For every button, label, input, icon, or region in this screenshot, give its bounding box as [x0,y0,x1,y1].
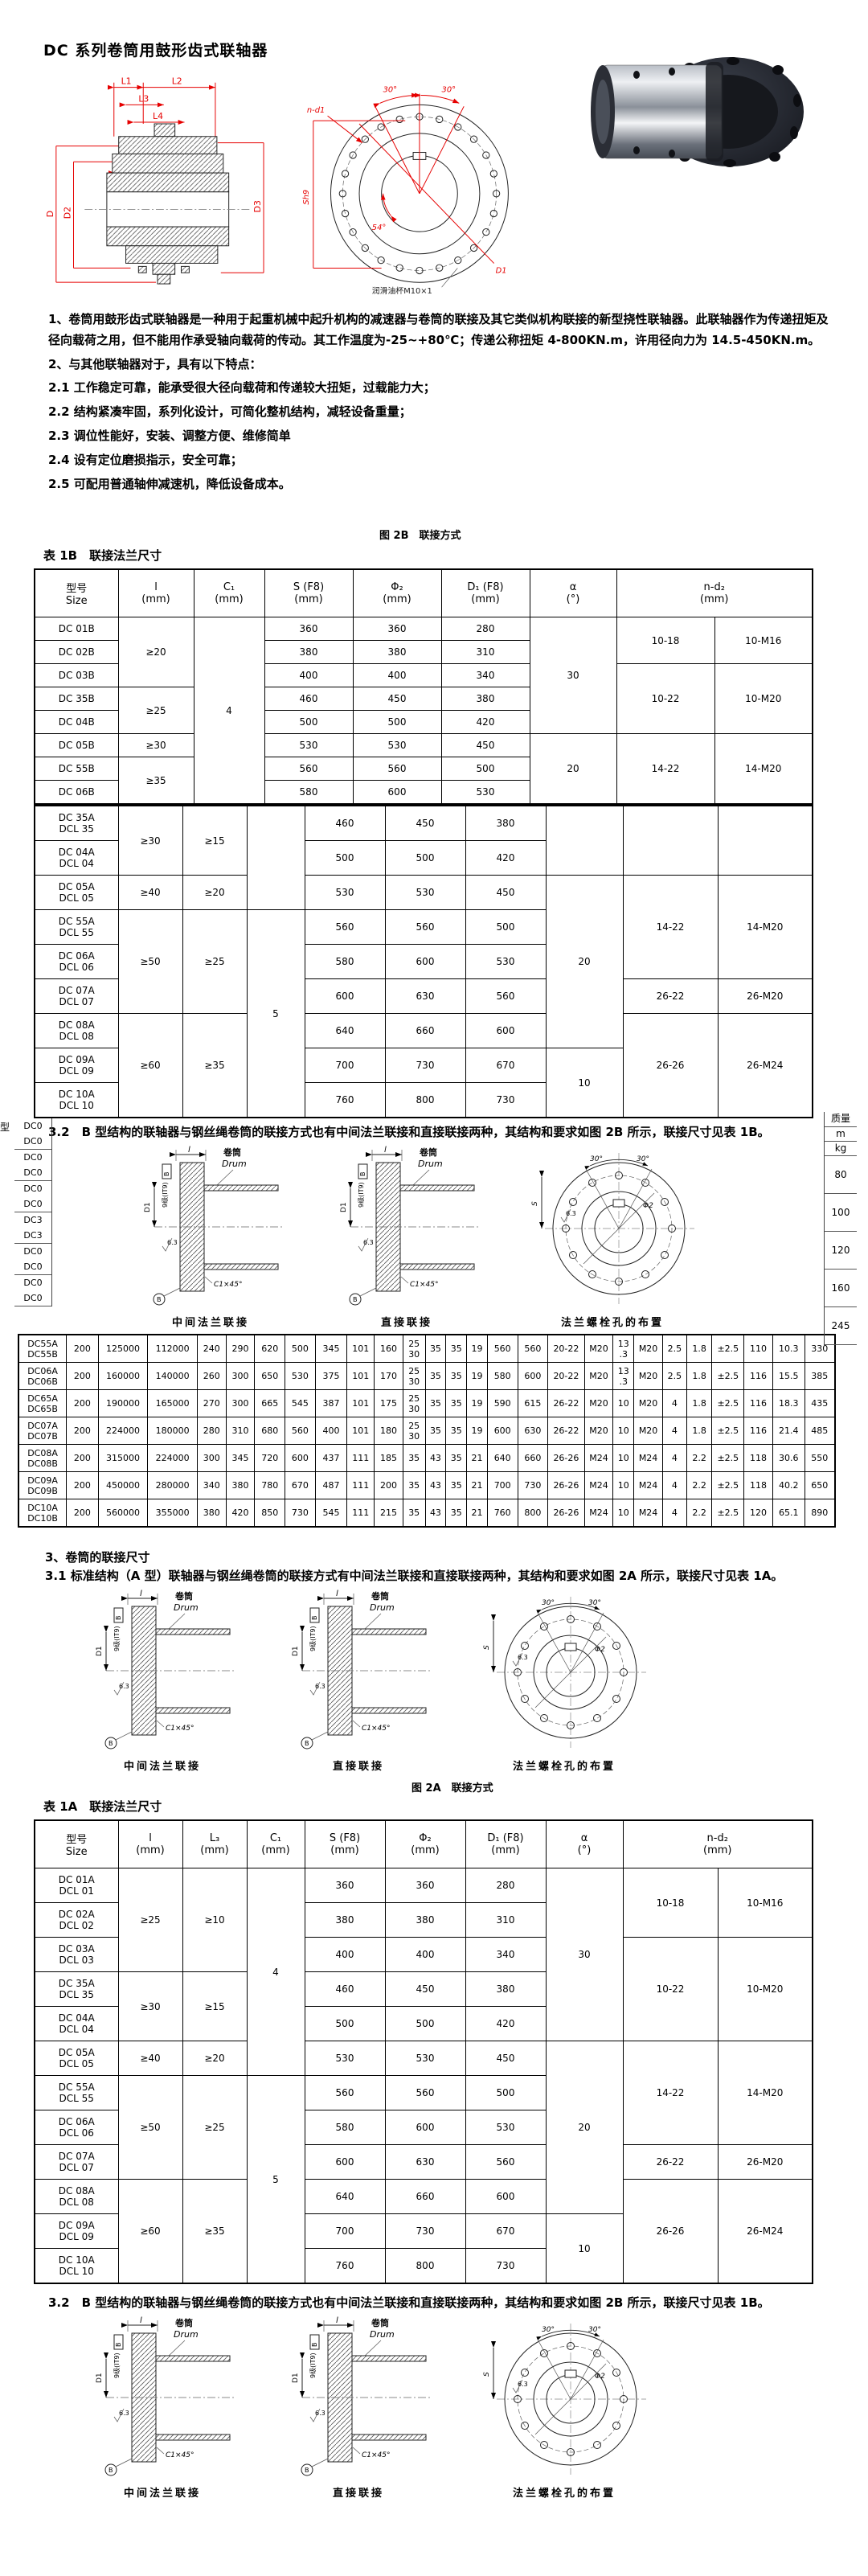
table-cell: 4 [662,1499,686,1528]
svg-text:D1: D1 [292,1647,300,1657]
table-cell: 25 30 [403,1390,425,1417]
table-cell: 35 [425,1417,446,1445]
table-cell: 10 [546,2214,623,2284]
table-cell: M24 [634,1472,663,1499]
table-cell: 10-M16 [714,617,813,664]
svg-text:6.3: 6.3 [315,1683,325,1690]
table-cell: 19 [467,1335,488,1363]
table-cell: 600 [487,1417,518,1445]
svg-text:30°: 30° [637,1155,649,1163]
svg-text:C1×45°: C1×45° [166,1725,194,1733]
table-cell: 18.3 [772,1390,805,1417]
table-cell: DC 55A DCL 55 [35,910,118,945]
table-cell: ±2.5 [712,1499,744,1528]
table-cell: 380 [465,806,546,841]
table-cell: 26-26 [548,1472,584,1499]
table-cell: 650 [255,1363,285,1390]
table-cell: 160 [375,1335,403,1363]
table-cell: DC 05A DCL 05 [35,2041,118,2076]
table-cell: 21.4 [772,1417,805,1445]
table-row: DC 05A DCL 05≥40≥205305304502014-2214-M2… [35,876,813,910]
direct-figure: l 卷筒 Drum D1 9级(IT9) B 6.3 C1×45° B 直接联接 [326,1143,487,1329]
table-cell: M24 [634,1499,663,1528]
table-cell: 600 [465,1014,546,1048]
table-cell: M20 [584,1390,613,1417]
table-cell: 116 [744,1363,773,1390]
edge-item: DC3 [14,1212,51,1228]
table-cell: 300 [226,1390,255,1417]
table-cell: 35 [446,1499,467,1528]
table-cell: 1.8 [686,1335,712,1363]
table-cell: DC 05B [35,734,118,757]
table-cell: 580 [487,1363,518,1390]
table-cell: 101 [347,1335,375,1363]
header-cell: C₁ (mm) [247,1820,305,1868]
svg-text:9级(IT9): 9级(IT9) [113,1626,121,1652]
paragraph-2-5: 2.5 可配用普通轴伸减速机，降低设备成本。 [48,474,829,495]
table-cell: 10 [613,1445,634,1472]
table-cell: 340 [465,1938,546,1972]
table-cell: 26-26 [548,1499,584,1528]
table-1b: 型号 Sizel (mm)C₁ (mm)S (F8) (mm)Φ₂ (mm)D₁… [34,568,836,805]
svg-text:9级(IT9): 9级(IT9) [357,1183,365,1208]
svg-text:Drum: Drum [174,2329,199,2340]
svg-text:D: D [45,211,55,217]
paragraph-2-4: 2.4 设有定位磨损指示，安全可靠； [48,450,829,471]
header-cell: l (mm) [118,569,194,617]
table-cell: DC 35A DCL 35 [35,1972,118,2007]
table-cell: 385 [805,1363,835,1390]
table-cell: 545 [315,1499,347,1528]
table-cell: 4 [662,1472,686,1499]
table-cell: ≥25 [118,1868,182,1972]
table-cell: 360 [385,1868,465,1903]
edge-item: DC0 [14,1118,51,1134]
table-cell: 40.2 [772,1472,805,1499]
table-cell: 111 [347,1445,375,1472]
table-cell: 2.2 [686,1445,712,1472]
table-cell: 26-22 [623,2145,718,2180]
svg-text:B: B [311,1616,318,1621]
table-cell: M24 [584,1472,613,1499]
table-cell: 4 [662,1417,686,1445]
edge-item: DC0 [14,1275,51,1290]
svg-text:l: l [384,1146,387,1155]
table-cell: 545 [285,1390,316,1417]
table-cell: 630 [518,1417,548,1445]
table-cell: DC 06A DCL 06 [35,2110,118,2145]
table-cell: 10-22 [623,1938,718,2041]
svg-text:6.3: 6.3 [566,1210,576,1217]
bolt-layout-caption: 法兰螺栓孔的布置 [474,1758,654,1773]
edge-item: DC0 [14,1244,51,1259]
svg-text:9级(IT9): 9级(IT9) [161,1183,169,1208]
table-cell: 224000 [148,1445,198,1472]
svg-text:l: l [140,2316,142,2325]
svg-text:30°: 30° [442,86,456,95]
table-cell: 680 [255,1417,285,1445]
svg-text:D1: D1 [340,1203,348,1213]
table-cell: 355000 [148,1499,198,1528]
svg-text:l: l [336,2316,338,2325]
header-row: 型号 Sizel (mm)C₁ (mm)S (F8) (mm)Φ₂ (mm)D₁… [35,569,813,617]
header-cell: Φ₂ (mm) [385,1820,465,1868]
table-cell: DC 01A DCL 01 [35,1868,118,1903]
bottom-diagrams: l 卷筒 Drum D1 9级(IT9) B 6.3 C1×45° B 中间法兰… [82,2314,836,2500]
table-cell: 360 [264,617,353,641]
table-cell: 400 [305,1938,385,1972]
mass-column-fragment: 质量 m kg 80100120160245 [824,1112,857,1345]
table-cell: 190000 [98,1390,148,1417]
svg-text:C1×45°: C1×45° [166,2451,194,2459]
table-cell: 200 [375,1472,403,1499]
table-cell: ±2.5 [712,1390,744,1417]
table-cell: 10 [613,1390,634,1417]
table-cell: 600 [305,2145,385,2180]
table-cell: 26-M24 [718,2180,813,2284]
edge-item: DC0 [14,1150,51,1165]
svg-text:54°: 54° [372,224,386,232]
svg-text:6.3: 6.3 [518,2381,528,2388]
table-cell: 4 [662,1390,686,1417]
table-cell: 116 [744,1417,773,1445]
table-cell: 700 [305,2214,385,2249]
table-1b-continuation: DC 35A DCL 35≥30≥15460450380DC 04A DCL 0… [34,805,836,1118]
svg-text:卷筒: 卷筒 [371,2317,389,2328]
data-table: 型号 Sizel (mm)L₃ (mm)C₁ (mm)S (F8) (mm)Φ₂… [34,1819,813,2284]
table-cell: 500 [285,1335,316,1363]
table-cell: 185 [375,1445,403,1472]
table-cell: M20 [634,1390,663,1417]
table-row: DC08A DC08B20031500022400030034572060043… [18,1445,835,1472]
table-cell: 13 .3 [613,1335,634,1363]
table-cell: 620 [255,1335,285,1363]
table-cell: 730 [285,1499,316,1528]
table-cell: 101 [347,1390,375,1417]
svg-text:30°: 30° [588,2326,601,2334]
header-cell: l (mm) [118,1820,182,1868]
svg-text:S: S [531,1201,539,1206]
table-cell: 530 [285,1363,316,1390]
table-cell: DC 04A DCL 04 [35,2007,118,2041]
table-cell: DC55A DC55B [18,1335,67,1363]
table-cell: 380 [305,1903,385,1938]
table-cell: 26-M20 [718,2145,813,2180]
table-cell: 180000 [148,1417,198,1445]
table-cell: DC 06A DCL 06 [35,945,118,979]
table-cell: 310 [226,1417,255,1445]
edge-item: 245 [825,1307,857,1345]
table-cell: 101 [347,1417,375,1445]
table-cell: 26-22 [548,1390,584,1417]
table-cell: 730 [465,1083,546,1118]
section-3-heading: 3、卷筒的联接尺寸 [45,1548,836,1565]
table-cell: 26-26 [548,1445,584,1472]
table-cell [247,806,305,910]
table-cell: ≥25 [118,687,194,734]
table-cell: 21 [467,1499,488,1528]
table-cell: 35 [446,1363,467,1390]
svg-text:30°: 30° [383,86,397,95]
table-cell: 380 [197,1499,226,1528]
figure-2a-caption: 图 2A 联接方式 [411,1779,836,1795]
table-cell: 450 [385,806,465,841]
table-cell: 20-22 [548,1363,584,1390]
svg-text:Drum: Drum [222,1159,247,1169]
table-cell: ±2.5 [712,1445,744,1472]
table-cell: 375 [315,1363,347,1390]
svg-text:9级(IT9): 9级(IT9) [113,2353,121,2379]
flange-face-drawing: n-d1 30° 30° Sh9 54° D1 润滑油杯M10×1 [286,68,548,297]
table-cell: ≥40 [118,2041,182,2076]
table-row: DC 05A DCL 05≥40≥205305304502014-2214-M2… [35,2041,813,2076]
table-cell: DC 04A DCL 04 [35,841,118,876]
header-cell: D₁ (F8) (mm) [441,569,530,617]
table-cell: 580 [305,945,385,979]
table-cell: 500 [441,757,530,781]
table-cell: 560 [285,1417,316,1445]
table-cell: 35 [403,1445,425,1472]
svg-text:B: B [311,2343,318,2348]
table-cell: 2.2 [686,1499,712,1528]
table-row: DC 08A DCL 08≥60≥3564066060026-2626-M24 [35,1014,813,1048]
table-cell: 800 [385,2249,465,2284]
figure-2b-caption: 图 2B 联接方式 [379,527,836,542]
table-cell: 780 [255,1472,285,1499]
table-cell: DC 02A DCL 02 [35,1903,118,1938]
table-cell: 530 [264,734,353,757]
table-cell: 215 [375,1499,403,1528]
table-cell: 26-26 [623,1014,718,1118]
svg-text:B: B [108,1740,113,1747]
table-cell: ≥50 [118,2076,182,2180]
table-cell: 530 [465,2110,546,2145]
svg-text:6.3: 6.3 [167,1239,178,1246]
table-cell: 14-22 [623,876,718,979]
table-cell: 760 [487,1499,518,1528]
table-cell: 120 [744,1499,773,1528]
top-figures: L1 L2 L3 L4 e D D2 D3 [37,68,836,297]
table-cell: 14-22 [623,2041,718,2145]
table-cell: 30 [530,617,616,734]
direct-figure: l 卷筒 Drum D1 9级(IT9) B 6.3 C1×45° B 直接联接 [278,1587,439,1773]
table-cell: 35 [446,1335,467,1363]
mid-flange-caption: 中间法兰联接 [130,1314,291,1329]
figure-2a-diagrams: l 卷筒 Drum D1 9级(IT9) B 6.3 C1×45° B 中间法兰… [82,1587,836,1773]
svg-text:30°: 30° [542,1599,555,1607]
table-cell: 450 [465,876,546,910]
table-cell: 450 [441,734,530,757]
table-cell: 19 [467,1363,488,1390]
table-cell: DC09A DC09B [18,1472,67,1499]
table-cell: 10 [546,1048,623,1118]
table-cell: 360 [305,1868,385,1903]
table-cell: 600 [385,945,465,979]
svg-text:l: l [188,1146,190,1155]
table-cell: DC 07A DCL 07 [35,2145,118,2180]
svg-text:D1: D1 [96,2373,104,2384]
edge-item: 100 [825,1194,857,1232]
table-cell: 165000 [148,1390,198,1417]
table-cell: 380 [385,1903,465,1938]
svg-text:l: l [140,1589,142,1598]
header-cell: n-d₂ (mm) [623,1820,813,1868]
table-cell: 560 [385,910,465,945]
table-cell: DC 08A DCL 08 [35,1014,118,1048]
table-cell: ≥25 [182,2076,247,2180]
table-cell: ±2.5 [712,1417,744,1445]
table-cell: 10-18 [616,617,714,664]
table-cell: 26-22 [548,1417,584,1445]
table-cell: 180 [375,1417,403,1445]
table-cell: 35 [425,1390,446,1417]
paragraph-3-1: 3.1 标准结构（A 型）联轴器与钢丝绳卷筒的联接方式有中间法兰联接和直接联接两… [45,1567,836,1584]
table-cell: 1.8 [686,1363,712,1390]
table-cell: 2.5 [662,1363,686,1390]
table-cell: 10.3 [772,1335,805,1363]
svg-text:B: B [108,2467,113,2474]
svg-text:D1: D1 [496,266,507,275]
table-cell: ≥30 [118,1972,182,2041]
table-row: DC 01A DCL 01≥25≥1043603602803010-1810-M… [35,1868,813,1903]
header-cell: S (F8) (mm) [264,569,353,617]
svg-text:C1×45°: C1×45° [214,1281,243,1289]
header-cell: 型号 Size [35,569,118,617]
table-cell: 35 [446,1390,467,1417]
table-cell: 118 [744,1472,773,1499]
table-cell: 270 [197,1390,226,1417]
direct-caption: 直接联接 [278,2484,439,2500]
svg-text:卷筒: 卷筒 [419,1146,437,1158]
table-cell: 1.8 [686,1417,712,1445]
table-cell: 450000 [98,1472,148,1499]
table-cell: 111 [347,1499,375,1528]
svg-text:C1×45°: C1×45° [362,1725,391,1733]
table-cell: 15.5 [772,1363,805,1390]
header-cell: 型号 Size [35,1820,118,1868]
table-cell: 25 30 [403,1335,425,1363]
table-cell: 670 [465,1048,546,1083]
svg-text:D2: D2 [63,207,73,219]
edge-item: DC0 [14,1259,51,1275]
table-cell: 20 [530,734,616,805]
table-cell: 26-26 [623,2180,718,2284]
table-cell: 550 [805,1445,835,1472]
paragraph-2: 2、与其他联轴器对于，具有以下特点： [48,355,829,375]
svg-text:B: B [305,1740,309,1747]
table-cell: 290 [226,1335,255,1363]
table-cell: 25 30 [403,1417,425,1445]
table-cell: 20 [546,876,623,1048]
note-3-2-mid: 3.2 B 型结构的联轴器与钢丝绳卷筒的联接方式也有中间法兰联接和直接联接两种，… [48,1123,836,1140]
table-cell: 760 [305,2249,385,2284]
table-cell: 380 [264,641,353,664]
table-cell: 380 [226,1472,255,1499]
table-cell: 26-22 [623,979,718,1014]
table-cell: DC 09A DCL 09 [35,1048,118,1083]
table-cell: 730 [385,1048,465,1083]
svg-text:6.3: 6.3 [315,2410,325,2417]
table-cell: 615 [518,1390,548,1417]
table-cell: 35 [403,1499,425,1528]
table-cell: DC 04B [35,711,118,734]
overlap-block: 型 DC0DC0DC0DC0DC0DC0DC3DC3DC0DC0DC0DC0 质… [34,1123,836,1329]
table-cell: 435 [805,1390,835,1417]
table-cell: ≥30 [118,734,194,757]
table-row: DC10A DC10B20056000035500038042085073054… [18,1499,835,1528]
table-cell: 2.2 [686,1472,712,1499]
table-cell: 600 [353,781,441,805]
flange-connection-drawing: l 卷筒 Drum D1 9级(IT9) B 6.3 C1×45° B [82,2314,243,2480]
svg-text:9级(IT9): 9级(IT9) [309,2353,317,2379]
table-cell: 175 [375,1390,403,1417]
table-1b-title: 表 1B 联接法兰尺寸 [43,547,836,564]
svg-text:n-d1: n-d1 [307,106,325,115]
header-cell: D₁ (F8) (mm) [465,1820,546,1868]
svg-text:l: l [336,1589,338,1598]
svg-text:B: B [163,1172,170,1177]
table-cell [546,806,623,876]
table-cell: 850 [255,1499,285,1528]
table-cell: 387 [315,1390,347,1417]
table-cell: 280 [465,1868,546,1903]
bolt-layout-figure: 30° 30° S 6.3 Φ2 法兰螺栓孔的布置 [474,2314,654,2500]
table-cell: M24 [584,1445,613,1472]
table-cell: 660 [518,1445,548,1472]
table-cell: 450 [353,687,441,711]
header-cell: α (°) [546,1820,623,1868]
table-cell: 14-M20 [718,2041,813,2145]
table-cell: M20 [634,1335,663,1363]
table-row: DC09A DC09B20045000028000034038078067048… [18,1472,835,1499]
edge-item: DC0 [14,1196,51,1212]
table-cell: 560000 [98,1499,148,1528]
table-cell: 340 [441,664,530,687]
table-cell: 730 [385,2214,465,2249]
table-cell: 43 [425,1499,446,1528]
table-cell: ±2.5 [712,1335,744,1363]
svg-text:卷筒: 卷筒 [371,1590,389,1602]
table-cell: 760 [305,1083,385,1118]
table-cell: 35 [446,1417,467,1445]
table-cell: 560 [518,1335,548,1363]
table-cell: 280 [197,1417,226,1445]
table-cell: DC 03A DCL 03 [35,1938,118,1972]
table-cell: 530 [385,2041,465,2076]
table-cell: 600 [285,1445,316,1472]
table-cell: 200 [67,1363,99,1390]
table-cell: DC 10A DCL 10 [35,2249,118,2284]
edge-item: DC3 [14,1228,51,1244]
table-cell: 14-M20 [714,734,813,805]
mid-flange-caption: 中间法兰联接 [82,2484,243,2500]
table-cell: 380 [441,687,530,711]
svg-text:B: B [353,1296,358,1303]
table-cell: 560 [487,1335,518,1363]
table-cell: 500 [353,711,441,734]
header-cell: n-d₂ (mm) [616,569,813,617]
table-cell: DC 55A DCL 55 [35,2076,118,2110]
table-cell: DC 06B [35,781,118,805]
table-cell: 10-18 [623,1868,718,1938]
table-cell: 35 [425,1363,446,1390]
bolt-layout-caption: 法兰螺栓孔的布置 [522,1314,702,1329]
paragraph-2-2: 2.2 结构紧凑牢固，系列化设计，可简化整机结构，减轻设备重量； [48,402,829,423]
table-cell: 700 [305,1048,385,1083]
table-1a-title: 表 1A 联接法兰尺寸 [43,1798,836,1815]
table-cell: 640 [305,2180,385,2214]
table-cell: DC 10A DCL 10 [35,1083,118,1118]
